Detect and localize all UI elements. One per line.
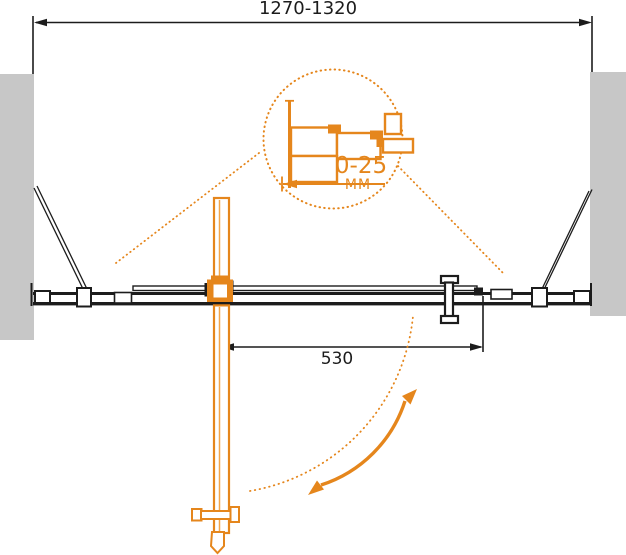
door-glass-upper [214,198,229,279]
overall-width-dimension [33,16,592,74]
door-panel [192,198,239,553]
bar-slider-block [491,290,512,300]
right-strut-connector [532,288,547,307]
shower-door-technical-drawing: 1270-1320 530 0-25 MM [0,0,626,555]
right-wall-bracket [574,291,590,303]
overall-width-label: 1270-1320 [233,0,383,18]
arrow-right-icon [579,19,592,26]
bar-hinge-block [115,293,132,304]
left-strut [34,186,87,291]
left-wall [0,74,34,340]
left-strut-connector [77,288,91,307]
left-wall-bracket [35,291,50,303]
door-width-label: 530 [287,351,387,368]
arrow-left-icon [34,19,47,26]
adjustment-unit-label: MM [338,178,378,192]
arrowhead-down-icon [308,481,324,496]
door-foot [211,532,224,553]
knob-handle [441,276,458,323]
swing-direction-arrow [308,389,417,495]
arrow-right-icon [470,343,483,351]
swing-arc-dotted [250,316,413,491]
door-glass-lower [214,305,229,533]
right-strut [541,190,592,292]
drawing-canvas [0,0,626,555]
adjustment-range-label: 0-25 [333,155,389,178]
fixed-glass-panel [133,286,477,291]
right-wall [590,72,626,316]
detail-leader-right [398,166,505,275]
detail-leader-left [116,153,259,263]
support-bar-assembly [32,283,593,307]
